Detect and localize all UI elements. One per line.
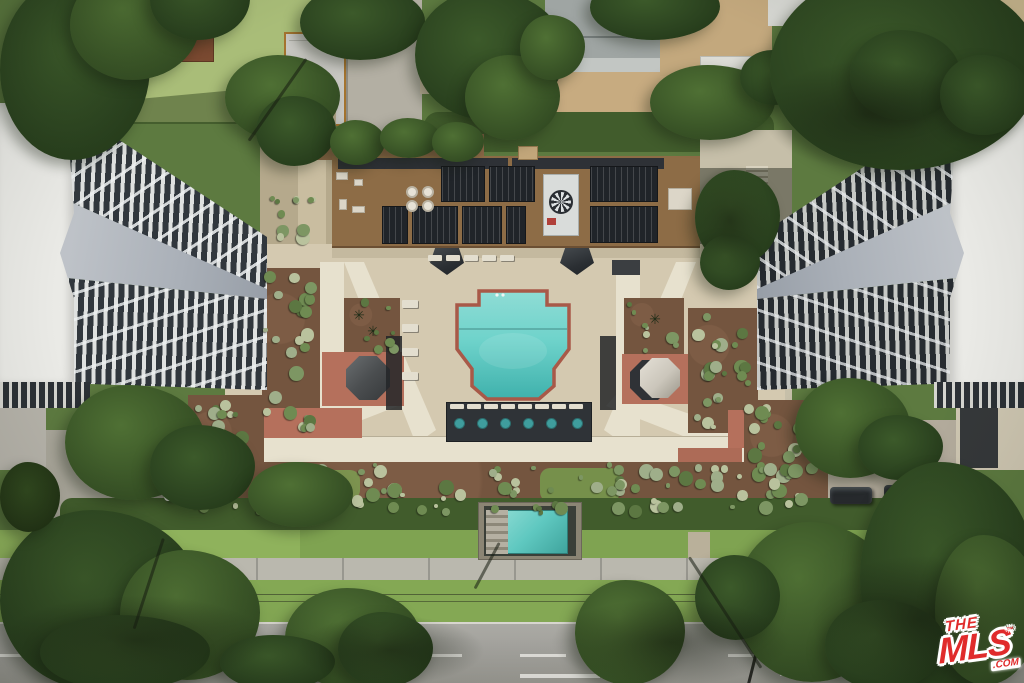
shrub xyxy=(388,502,399,513)
shrub xyxy=(386,306,391,311)
shrub xyxy=(695,479,705,489)
shrub xyxy=(579,475,584,480)
pool-lounger xyxy=(467,404,481,409)
shrub xyxy=(274,291,282,299)
pool-lounger xyxy=(518,404,532,409)
shrub xyxy=(627,302,632,307)
tree-shadow xyxy=(690,165,770,275)
shrub xyxy=(694,414,701,421)
pool-lounger xyxy=(402,348,418,356)
pool-lounger xyxy=(446,255,460,261)
roof-vent xyxy=(422,200,434,212)
solar-panel-array xyxy=(441,166,485,202)
shrub xyxy=(233,503,238,508)
entry-shadow-right xyxy=(960,404,998,468)
roof-skylight xyxy=(668,188,692,210)
pool-lounger xyxy=(402,324,418,332)
shrub xyxy=(658,502,669,513)
side-pad-left xyxy=(0,406,46,470)
right-tower-carports xyxy=(934,382,1024,408)
shrub xyxy=(275,199,280,204)
pool-lounger xyxy=(482,255,496,261)
shrub xyxy=(730,505,735,510)
shrub xyxy=(759,501,773,515)
shrub xyxy=(306,423,315,432)
mls-tm: ™ xyxy=(1006,626,1015,635)
hvac-fan xyxy=(549,190,573,214)
shrub xyxy=(679,471,693,485)
solar-panel-array xyxy=(590,166,658,202)
shrub xyxy=(748,448,763,463)
shrub xyxy=(744,404,754,414)
umbrella-right xyxy=(640,358,680,398)
shrub xyxy=(284,406,297,419)
roof-skylight xyxy=(354,179,363,186)
shrub xyxy=(439,480,453,494)
roof-skylight xyxy=(352,206,365,213)
shrub xyxy=(373,463,377,467)
shrub xyxy=(732,342,738,348)
shrub xyxy=(374,330,379,335)
shrub xyxy=(712,343,718,349)
agave-plant: ✳ xyxy=(648,312,662,326)
shrub xyxy=(364,478,373,487)
pool-lounger xyxy=(402,372,418,380)
left-tower-carports xyxy=(0,382,90,408)
shrub xyxy=(352,495,363,506)
dark-car-a xyxy=(830,487,872,504)
shrub xyxy=(263,328,268,333)
solar-panel-array xyxy=(462,206,502,244)
shrub xyxy=(217,410,227,420)
shrub xyxy=(614,465,623,474)
swimming-pool xyxy=(455,289,571,401)
shrub xyxy=(737,371,747,381)
roof-vent xyxy=(422,186,434,198)
shrub xyxy=(361,298,369,306)
shrub xyxy=(434,504,438,508)
shrub xyxy=(666,483,671,488)
shrub xyxy=(297,224,309,236)
shrub xyxy=(455,489,467,501)
hvac-red-unit xyxy=(547,218,556,225)
roof-skylight xyxy=(339,199,347,210)
shrub xyxy=(643,331,650,338)
shrub xyxy=(442,508,450,516)
solar-panel-array xyxy=(590,206,658,243)
shrub xyxy=(737,474,742,479)
shrub xyxy=(695,464,702,471)
shrub xyxy=(710,361,722,373)
spa-table xyxy=(523,418,534,429)
shrub xyxy=(364,336,369,341)
pool-lounger xyxy=(428,255,442,261)
shrub xyxy=(642,323,647,328)
roof-vent xyxy=(406,200,418,212)
pool-lounger xyxy=(535,404,549,409)
solar-panel-array xyxy=(412,206,458,244)
spa-table xyxy=(454,418,465,429)
shrub xyxy=(769,478,780,489)
mls-watermark: THE MLS ™ .COM xyxy=(932,607,1024,683)
agave-plant: ✳ xyxy=(352,308,366,322)
pool-lounger xyxy=(501,404,515,409)
shrub xyxy=(491,505,499,513)
shrub xyxy=(385,338,394,347)
shrub xyxy=(788,464,802,478)
tree-shadow xyxy=(0,595,270,683)
pool-lounger xyxy=(500,255,514,261)
shrub xyxy=(764,463,777,476)
spa-table xyxy=(500,418,511,429)
roof-vent xyxy=(406,186,418,198)
grass-patch-b xyxy=(540,468,620,502)
pool-lounger xyxy=(464,255,478,261)
shrub xyxy=(289,273,299,283)
solar-panel-array xyxy=(382,206,408,244)
shrub xyxy=(272,336,279,343)
shrub xyxy=(289,366,304,381)
tree-shadow xyxy=(550,598,790,683)
spa-table xyxy=(546,418,557,429)
shrub xyxy=(716,397,720,401)
pool-lounger xyxy=(484,404,498,409)
shrub xyxy=(632,310,637,315)
pool-lounger xyxy=(450,404,464,409)
roof-skylight xyxy=(336,172,348,180)
shrub xyxy=(737,490,748,501)
shrub xyxy=(233,412,238,417)
shrub xyxy=(607,486,617,496)
shrub xyxy=(441,496,446,501)
shrub xyxy=(263,408,271,416)
shrub xyxy=(737,328,747,338)
shrub xyxy=(305,294,315,304)
mls-com: .COM xyxy=(991,657,1021,671)
shrub xyxy=(391,331,395,335)
shrub xyxy=(286,347,296,357)
shrub xyxy=(607,462,613,468)
shrub xyxy=(555,502,568,515)
shrub xyxy=(629,505,641,517)
umbrella-left xyxy=(346,356,390,400)
shrub xyxy=(278,210,286,218)
aerial-photo: ✳✳✳ THE MLS ™ .COM xyxy=(0,0,1024,683)
pool-lounger xyxy=(552,404,566,409)
shrub xyxy=(270,196,275,201)
solar-panel-array xyxy=(506,206,526,244)
shrub xyxy=(264,271,276,283)
tree-shadow xyxy=(762,60,972,170)
trellis-cap-right xyxy=(612,260,640,275)
shrub xyxy=(692,329,704,341)
shrub xyxy=(673,342,679,348)
spa-table xyxy=(477,418,488,429)
shrub xyxy=(591,482,603,494)
shrub xyxy=(651,498,657,504)
trellis-right xyxy=(600,336,616,410)
roof-chimney xyxy=(518,146,538,160)
tree-shadow xyxy=(295,615,485,683)
shrub xyxy=(631,484,640,493)
shrub xyxy=(417,505,427,515)
spa-table xyxy=(572,418,583,429)
shrub xyxy=(612,502,625,515)
pool-lounger xyxy=(569,404,583,409)
shrub xyxy=(308,197,314,203)
shrub xyxy=(489,469,497,477)
solar-panel-array xyxy=(489,166,535,202)
shrub xyxy=(755,406,769,420)
pool-lounger xyxy=(402,300,418,308)
